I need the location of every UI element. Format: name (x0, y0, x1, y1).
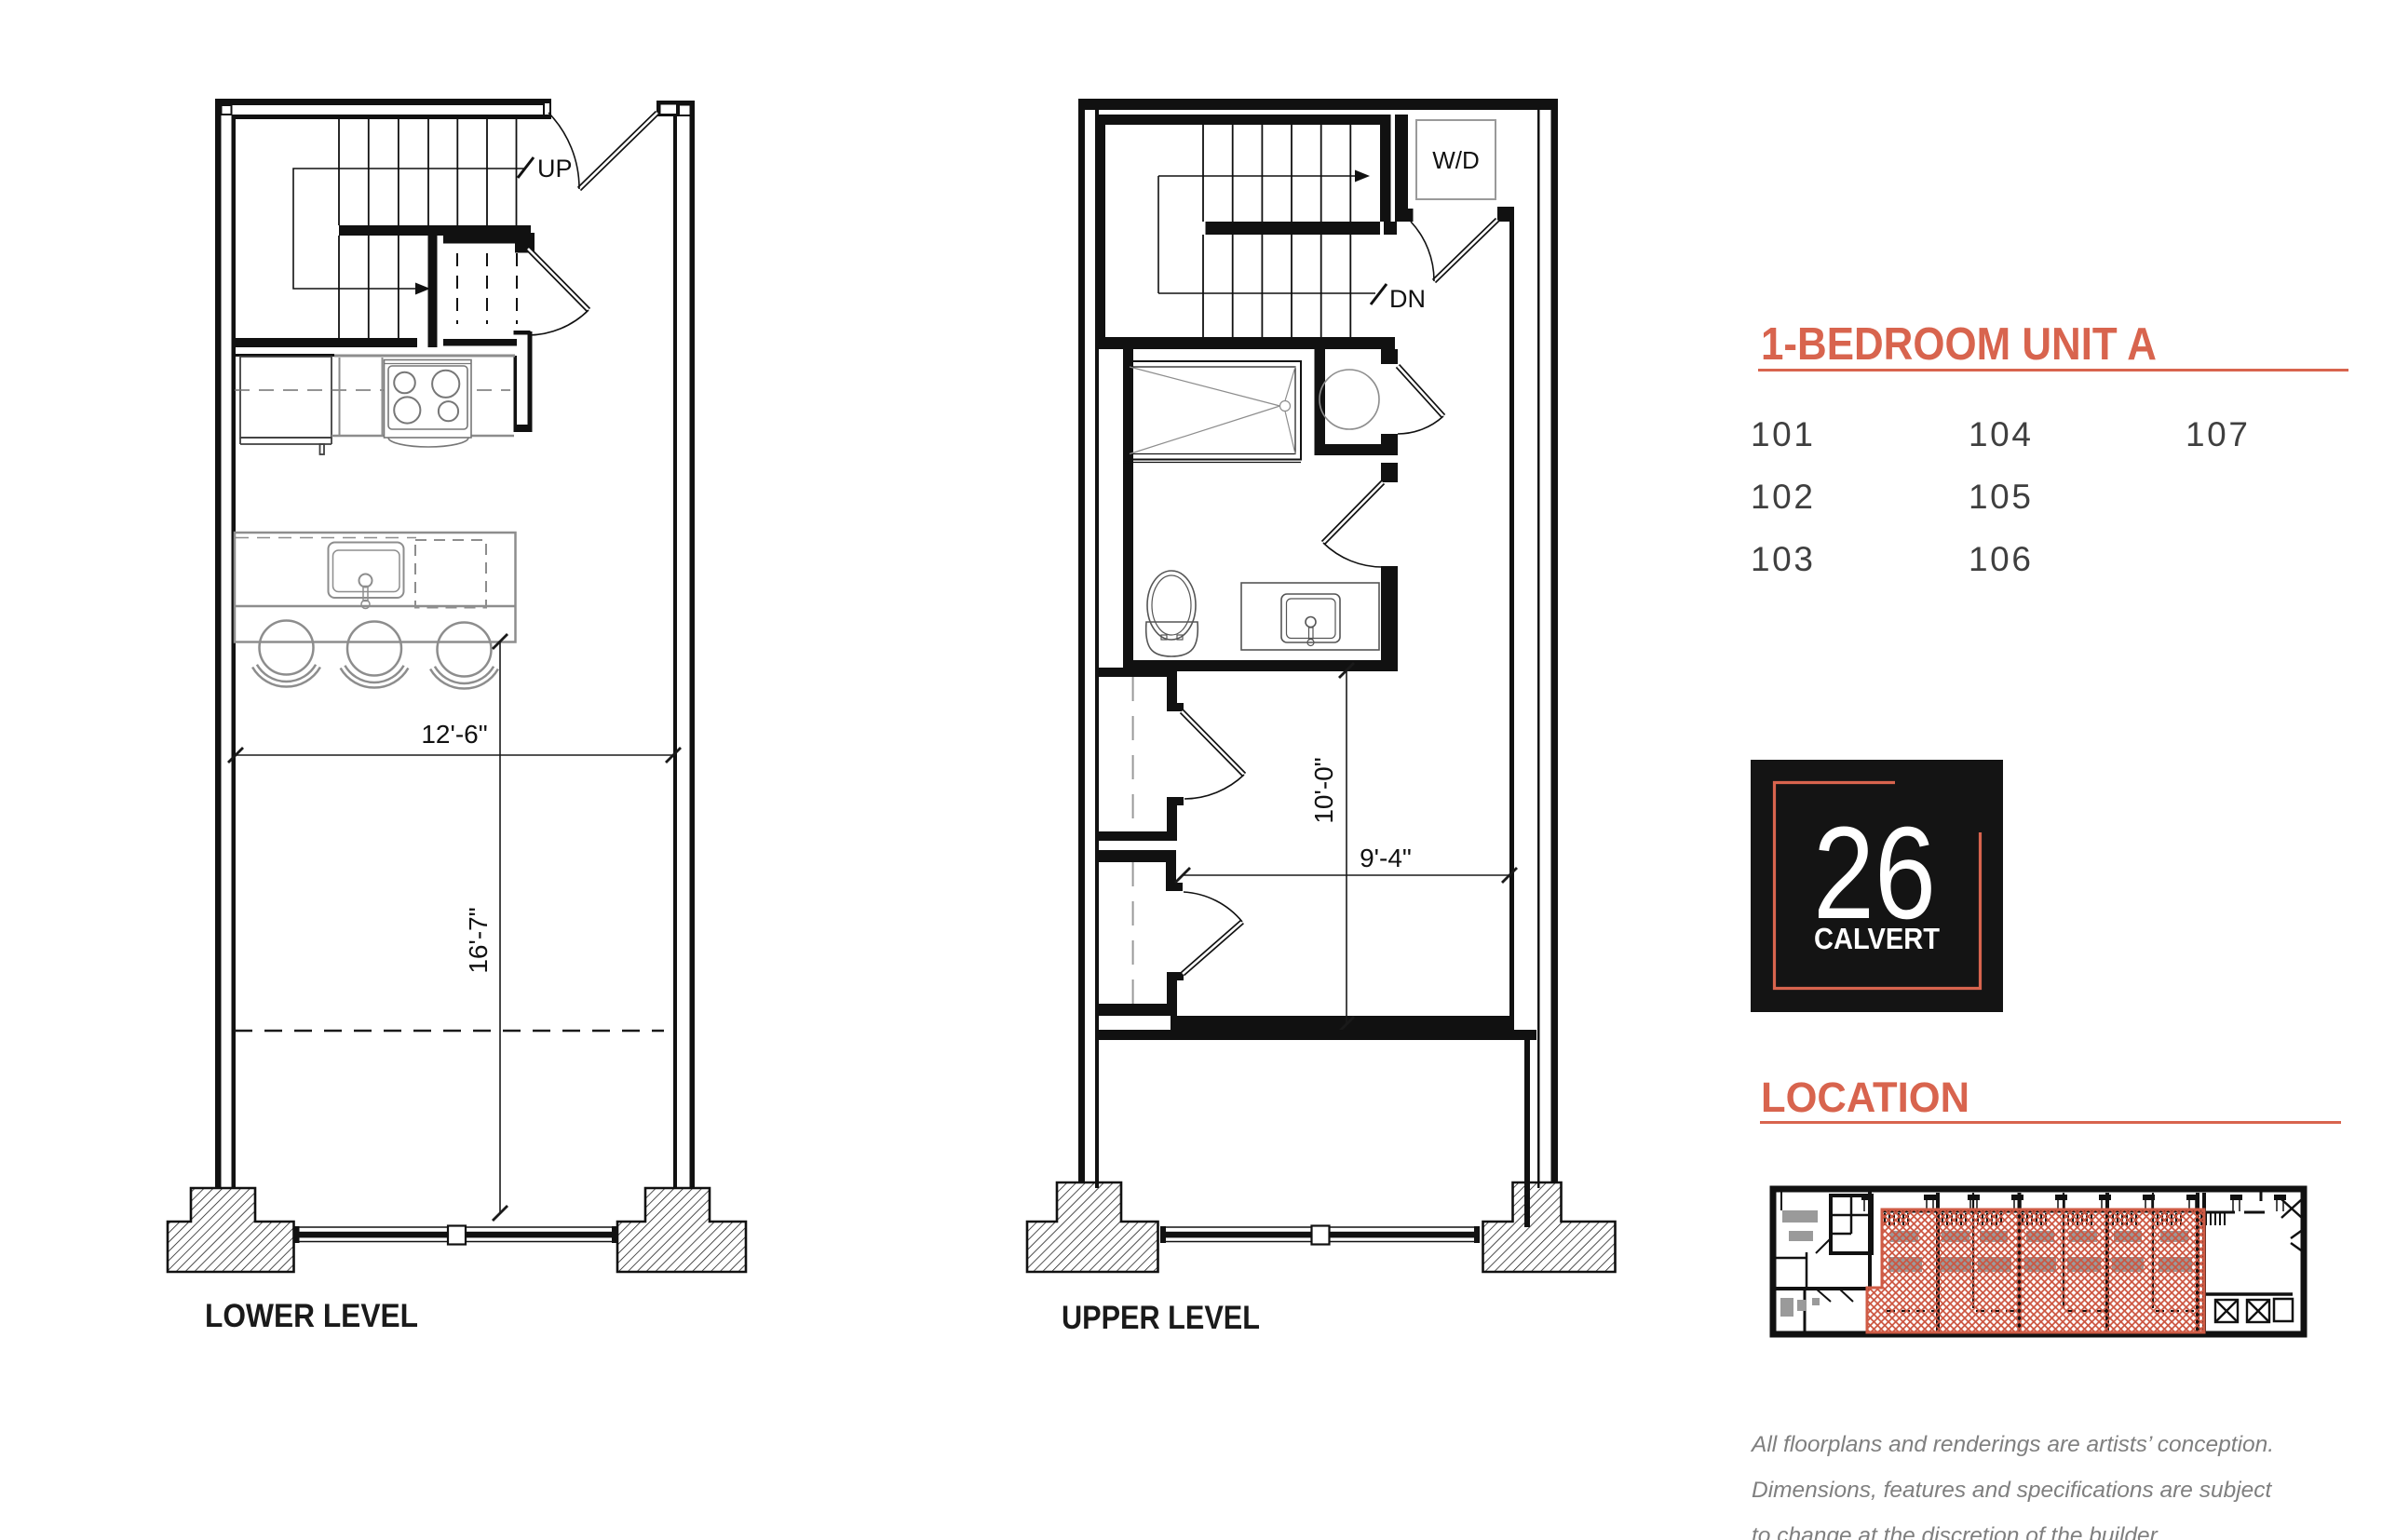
svg-text:DN: DN (1389, 285, 1426, 313)
svg-text:16'-7": 16'-7" (464, 907, 493, 973)
svg-text:UP: UP (537, 155, 573, 182)
svg-text:CALVERT: CALVERT (1814, 922, 1940, 955)
svg-text:12'-6": 12'-6" (421, 720, 487, 749)
svg-text:W/D: W/D (1432, 146, 1480, 174)
svg-text:10'-0": 10'-0" (1309, 757, 1338, 823)
svg-text:9'-4": 9'-4" (1360, 844, 1412, 872)
svg-text:LOCATION: LOCATION (1761, 1074, 1969, 1121)
svg-text:LOWER LEVEL: LOWER LEVEL (205, 1298, 418, 1334)
svg-text:1-BEDROOM UNIT A: 1-BEDROOM UNIT A (1761, 319, 2157, 370)
svg-text:UPPER LEVEL: UPPER LEVEL (1062, 1300, 1260, 1336)
